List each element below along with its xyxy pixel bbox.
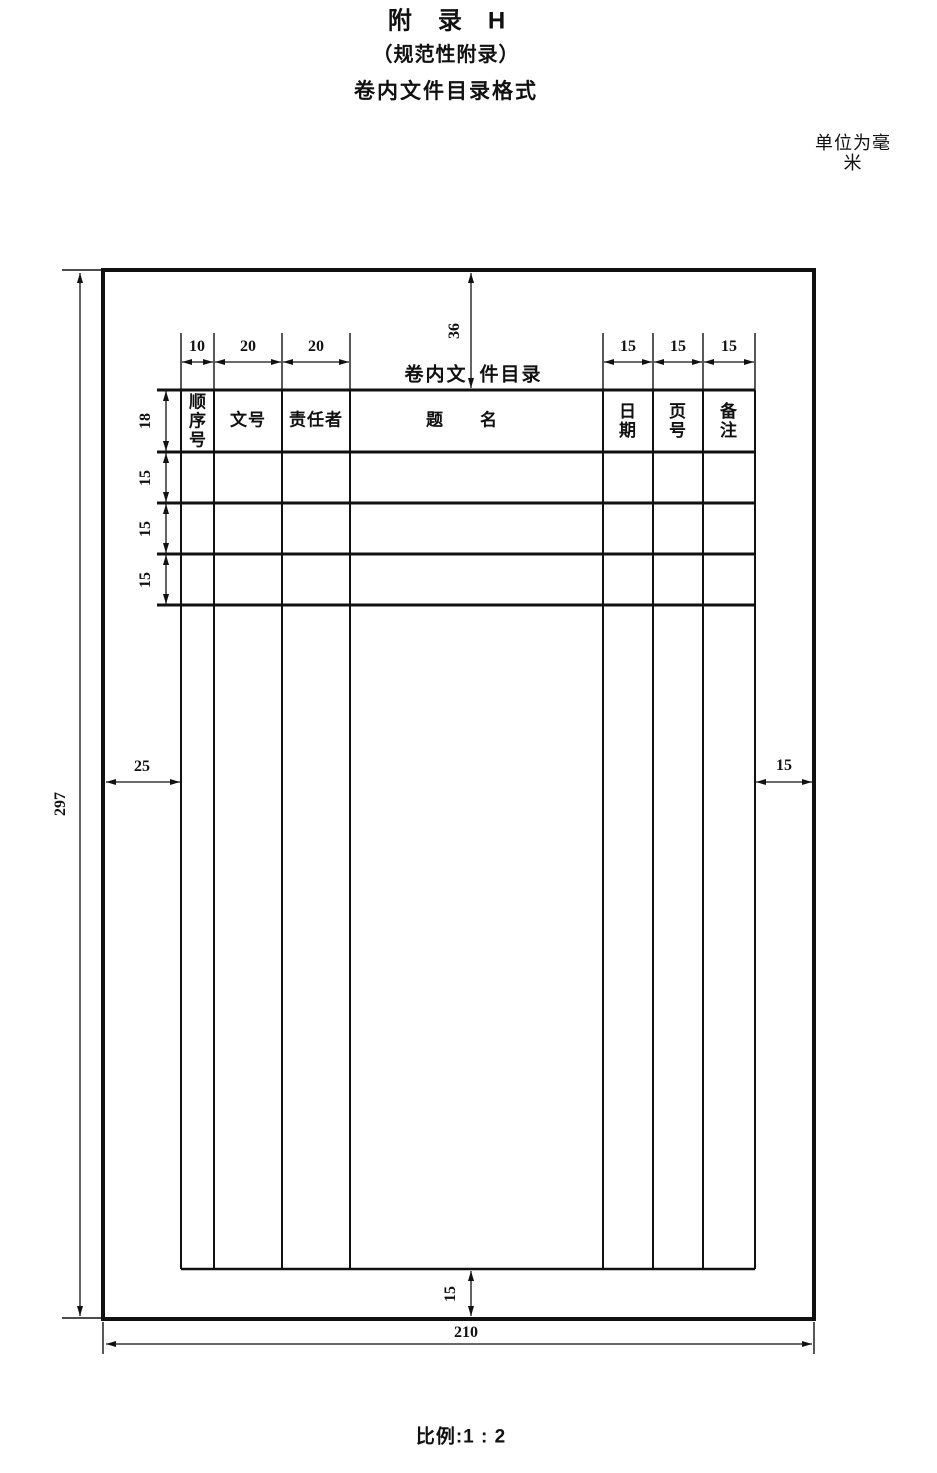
dim-label-bottom-gap: 15: [443, 1286, 459, 1302]
col-header-docno: 文号: [230, 411, 266, 430]
col-header-remark: 备 注: [720, 402, 738, 440]
unit-note: 单位为毫米: [811, 133, 895, 173]
form-dimension-diagram: [0, 0, 937, 1473]
dim-label-left-margin: 25: [134, 759, 150, 775]
dim-label-col-seq: 10: [189, 339, 205, 355]
form-title-right: 件目录: [479, 364, 542, 385]
dim-label-row-header: 18: [138, 413, 154, 429]
col-header-seq: 顺 序 号: [189, 393, 207, 450]
document-page: 附 录 H （规范性附录） 卷内文件目录格式 单位为毫米 卷内文 件目录 10 …: [0, 0, 937, 1473]
dim-label-page-width: 210: [454, 1325, 478, 1341]
dim-label-col-date: 15: [620, 339, 636, 355]
dim-label-row-3: 15: [138, 572, 154, 588]
dim-label-col-pageno: 15: [670, 339, 686, 355]
dim-label-col-remark: 15: [721, 339, 737, 355]
table-grid: [157, 390, 755, 1269]
col-header-date: 日 期: [619, 402, 637, 440]
col-header-title: 题 名: [426, 411, 498, 430]
dim-label-col-docno: 20: [240, 339, 256, 355]
form-title-left: 卷内文: [404, 364, 467, 385]
col-header-author: 责任者: [289, 411, 343, 430]
col-header-pageno: 页 号: [669, 402, 687, 440]
dim-label-row-1: 15: [138, 470, 154, 486]
appendix-heading: 卷内文件目录格式: [354, 80, 538, 104]
dim-label-col-author: 20: [308, 339, 324, 355]
extension-lines: [62, 270, 814, 1354]
dim-label-page-height: 297: [53, 792, 69, 816]
appendix-subtitle: （规范性附录）: [373, 44, 520, 66]
dim-label-right-margin: 15: [776, 758, 792, 774]
scale-note: 比例:1 : 2: [416, 1426, 506, 1447]
dim-label-row-2: 15: [138, 521, 154, 537]
dim-label-top-margin: 36: [447, 323, 463, 339]
appendix-title: 附 录 H: [388, 9, 506, 36]
